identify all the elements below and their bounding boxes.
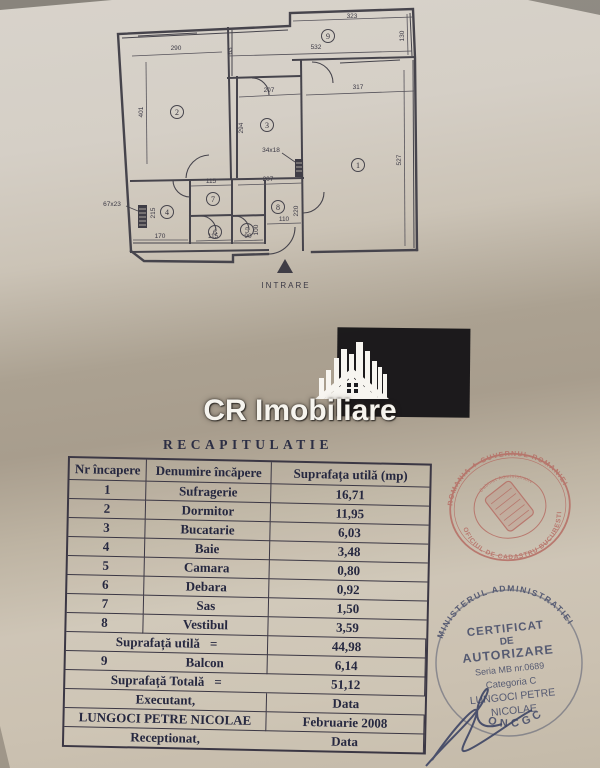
svg-text:4: 4 [165,208,169,217]
dim-label: 290 [171,45,182,52]
dim-label: 34x18 [262,147,280,154]
svg-text:9: 9 [326,32,330,41]
round-cadastru-stamp: ROMANIA ✦ GUVERNUL ROMANIEI OFICIUL DE C… [438,445,588,570]
room-number-4: 4 [161,206,174,219]
row-nr: 9 [66,651,143,672]
dim-label: 215 [150,207,157,218]
row-name: Sas [144,596,269,618]
svg-text:2: 2 [175,108,179,117]
stamp-crest [484,480,535,533]
room-number-7: 7 [207,193,220,206]
row-nr: 3 [68,518,145,539]
svg-text:1: 1 [356,161,360,170]
row-name: Baie [145,539,270,561]
room-number-3: 3 [261,119,274,132]
room-numbers: 1 2 3 4 5 6 7 8 9 [161,30,365,239]
row-nr: 4 [68,537,145,558]
dim-label: 110 [279,216,290,223]
svg-text:8: 8 [276,203,280,212]
dim-label: 207 [263,176,274,183]
row-nr: 1 [69,480,146,501]
col-header-denumire: Denumire încăpere [146,460,271,485]
room-number-5: 5 [241,224,254,237]
subtotal-equals: = [210,636,218,652]
house-skyline-icon [314,341,392,399]
row-name: Bucatarie [145,520,270,542]
row-nr: 6 [67,575,144,596]
row-nr: 2 [69,499,146,520]
entrance-arrow-icon [277,259,293,273]
dim-label: 100 [253,224,260,235]
data-label: Data [266,731,424,752]
dim-label: 170 [155,233,166,240]
floor-plan: 323 130 532 63 290 401 207 294 317 527 3… [0,0,600,300]
room-number-6: 6 [209,226,222,239]
svg-text:7: 7 [211,195,215,204]
row-nr: 8 [66,613,143,634]
dim-label: 532 [311,44,322,51]
room-number-2: 2 [171,106,184,119]
dim-label: 527 [396,154,403,165]
dim-label: 294 [238,122,245,133]
svg-text:3: 3 [265,121,269,130]
dim-label: 67x23 [103,201,121,208]
row-nr: 7 [67,594,144,615]
photo-corner-shadow [0,726,10,768]
row-name: Camara [144,558,269,580]
receptionat-label: Receptionat, [64,727,266,749]
scanned-document-photo: 323 130 532 63 290 401 207 294 317 527 3… [0,0,600,768]
entrance-label: INTRARE [261,281,310,290]
row-name: Vestibul [143,615,268,637]
col-header-nr: Nr încapere [69,458,146,482]
dim-label: 63 [227,47,234,55]
dim-label: 207 [264,87,275,94]
row-name: Sufragerie [146,482,271,504]
total-text: Suprafață Totală [111,672,205,690]
subtotal-text: Suprafață utilă [116,634,200,652]
row-name: Debara [144,577,269,599]
svg-text:6: 6 [213,228,217,237]
svg-text:5: 5 [245,226,249,235]
row-name: Balcon [143,653,268,675]
recap-title: RECAPITULATIE [95,437,401,453]
room-number-9: 9 [322,30,335,43]
row-nr: 5 [68,556,145,577]
room-number-8: 8 [272,201,285,214]
dim-label: 323 [347,13,358,20]
total-equals: = [214,674,222,690]
brand-wordmark: CR Imobiliare [197,394,403,428]
recap-table: Nr încapere Denumire încăpere Suprafața … [62,456,432,755]
dimension-labels: 323 130 532 63 290 401 207 294 317 527 3… [103,13,406,240]
dim-label: 317 [353,84,364,91]
dim-label: 130 [399,30,406,41]
dim-label: 220 [293,205,300,216]
room-number-1: 1 [352,159,365,172]
certificate-stamp: MINISTERUL ADMINISTRATIEI CERTIFICAT DE … [424,578,594,768]
dim-label: 115 [206,178,217,185]
row-name: Dormitor [146,501,271,523]
dim-label: 401 [138,106,145,117]
